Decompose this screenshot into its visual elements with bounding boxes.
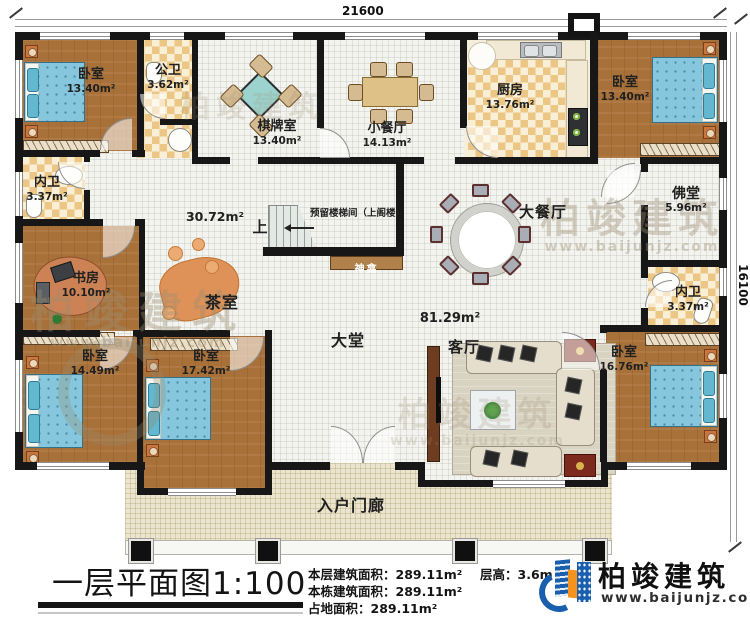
pillow: [703, 371, 715, 396]
right-dimension-label: 16100: [736, 264, 750, 306]
room-label-buddha-hall: 佛堂 5.96m²: [648, 186, 724, 214]
window: [719, 268, 727, 296]
shrine-bar: 神龛: [330, 256, 403, 270]
wall: [192, 157, 230, 164]
sofa-cushion: [483, 450, 501, 468]
tea-stone-icon: [168, 246, 183, 261]
room-label-living-room: 客厅: [436, 339, 492, 356]
kitchen-sink-basin: [524, 45, 539, 57]
pillow: [28, 414, 40, 443]
plant-icon: [484, 402, 501, 419]
stove-burner: [573, 113, 580, 120]
kitchen-sink-basin: [542, 45, 557, 57]
window: [15, 360, 23, 432]
stat-land-area: 占地面积：289.11m²: [308, 598, 437, 617]
window: [719, 374, 727, 418]
window: [345, 32, 425, 40]
hall-mid-area-label: 30.72m²: [180, 210, 250, 224]
wall: [160, 119, 198, 125]
title-underline: [38, 602, 303, 608]
room-label-great-hall: 大堂: [318, 332, 378, 350]
wall: [84, 150, 90, 162]
wall: [641, 164, 648, 172]
tv-icon: [436, 377, 441, 423]
wall: [265, 330, 272, 462]
hall-main-area-label: 81.29m²: [412, 312, 488, 327]
window: [168, 488, 236, 496]
nightstand: [704, 349, 717, 362]
room-label-bedroom-tl: 卧室 13.40m²: [50, 68, 132, 95]
floor-plan-canvas: 21600 16100: [0, 0, 750, 622]
nightstand: [704, 430, 717, 443]
corner-tick-icon: [728, 541, 742, 552]
wall: [266, 462, 330, 470]
window: [15, 243, 23, 303]
porch-step-band: [125, 540, 612, 555]
side-cabinet: [564, 454, 596, 477]
room-label-bedroom-br: 卧室 16.76m²: [580, 346, 668, 373]
stairs-arrow-head-icon: [284, 224, 291, 232]
window: [37, 462, 109, 470]
stairs-up-label: 上: [250, 219, 270, 236]
wall: [640, 157, 727, 164]
chair: [396, 62, 413, 77]
window: [627, 462, 691, 470]
room-label-public-bath: 公卫 3.62m²: [142, 64, 194, 91]
pillow: [703, 63, 715, 89]
window: [40, 32, 110, 40]
brand-logo-icon: [541, 556, 597, 616]
sofa-cushion: [520, 345, 538, 363]
room-label-ensuite-left: 内卫 3.37m²: [22, 176, 72, 203]
bed: [650, 365, 718, 427]
nightstand: [25, 45, 38, 58]
sofa-cushion: [565, 403, 583, 421]
wall: [455, 157, 598, 164]
tea-stone-icon: [205, 260, 219, 274]
tea-stone-icon: [192, 238, 205, 251]
plan-title: 一层平面图1:100: [52, 558, 306, 603]
chair: [348, 84, 363, 101]
chair: [518, 226, 531, 243]
brand-name: 柏竣建筑: [598, 555, 730, 595]
wardrobe: [645, 333, 720, 346]
plant-icon: [52, 314, 62, 324]
title-underline-thin: [38, 612, 303, 614]
window: [15, 60, 23, 118]
stairs-note-label: 预留楼梯间（上阁楼）: [310, 209, 420, 220]
wall: [192, 32, 198, 158]
room-label-bedroom-bm: 卧室 17.42m²: [162, 350, 250, 377]
room-label-tea-room: 茶室: [192, 294, 252, 312]
wall: [317, 32, 324, 128]
window: [225, 32, 293, 40]
stairs-arrow-icon: [288, 227, 314, 229]
wall: [648, 260, 727, 267]
washbasin-icon: [168, 128, 192, 152]
wall: [600, 370, 607, 462]
nightstand: [25, 125, 38, 138]
wall: [396, 164, 404, 250]
wardrobe: [640, 143, 720, 156]
wall: [600, 325, 727, 332]
kitchen-table-icon: [468, 42, 496, 70]
window: [719, 60, 727, 122]
room-label-dining-hall: 大餐厅: [508, 204, 578, 221]
wall: [600, 325, 607, 333]
pillow: [703, 93, 715, 119]
wall: [139, 219, 145, 330]
window: [150, 32, 184, 40]
wall: [460, 32, 467, 128]
nightstand: [26, 356, 39, 369]
wall: [15, 219, 103, 226]
logo-building-icon: [577, 562, 591, 602]
room-label-kitchen: 厨房 13.76m²: [468, 84, 552, 111]
chair: [430, 226, 443, 243]
wall: [641, 205, 648, 278]
top-dimension-line: [15, 19, 727, 27]
shrine-label: 神龛: [355, 264, 379, 275]
corner-tick-icon: [9, 7, 23, 18]
wall: [258, 157, 424, 164]
chair: [419, 84, 434, 101]
tea-stone-icon: [162, 306, 176, 320]
window: [628, 32, 700, 40]
wall: [84, 190, 90, 222]
room-label-bedroom-bl: 卧室 14.49m²: [52, 350, 138, 377]
stove-burner: [573, 129, 580, 136]
pillow: [28, 381, 40, 410]
dining-table-icon: [362, 77, 418, 107]
corner-tick-icon: [734, 13, 748, 24]
sofa-cushion: [511, 450, 529, 468]
corner-tick-icon: [713, 7, 727, 18]
room-label-ensuite-right: 内卫 3.37m²: [660, 286, 716, 313]
sofa-cushion: [498, 345, 516, 363]
wall: [15, 330, 100, 337]
sofa-cushion: [565, 377, 583, 395]
nightstand: [146, 444, 159, 457]
nightstand: [703, 126, 716, 139]
chair: [370, 62, 387, 77]
top-dimension-label: 21600: [342, 4, 384, 18]
porch-column: [453, 539, 477, 563]
room-label-study: 书房 10.10m²: [44, 272, 128, 299]
brand-website: www.baijunjz.com: [601, 590, 750, 606]
chair: [472, 184, 489, 197]
window: [478, 32, 558, 40]
nightstand: [703, 42, 716, 55]
room-label-bedroom-tr: 卧室 13.40m²: [584, 76, 666, 103]
pillow: [27, 68, 39, 92]
wall: [133, 330, 230, 337]
wall: [137, 32, 144, 152]
pillow: [27, 94, 39, 118]
room-label-chess-room: 棋牌室 13.40m²: [232, 120, 322, 147]
pillow: [703, 398, 715, 423]
chair: [472, 272, 489, 285]
wall: [263, 247, 404, 256]
room-label-small-dining: 小餐厅 14.13m²: [342, 122, 432, 149]
room-label-porch: 入户门廊: [308, 497, 394, 515]
window: [493, 480, 565, 488]
